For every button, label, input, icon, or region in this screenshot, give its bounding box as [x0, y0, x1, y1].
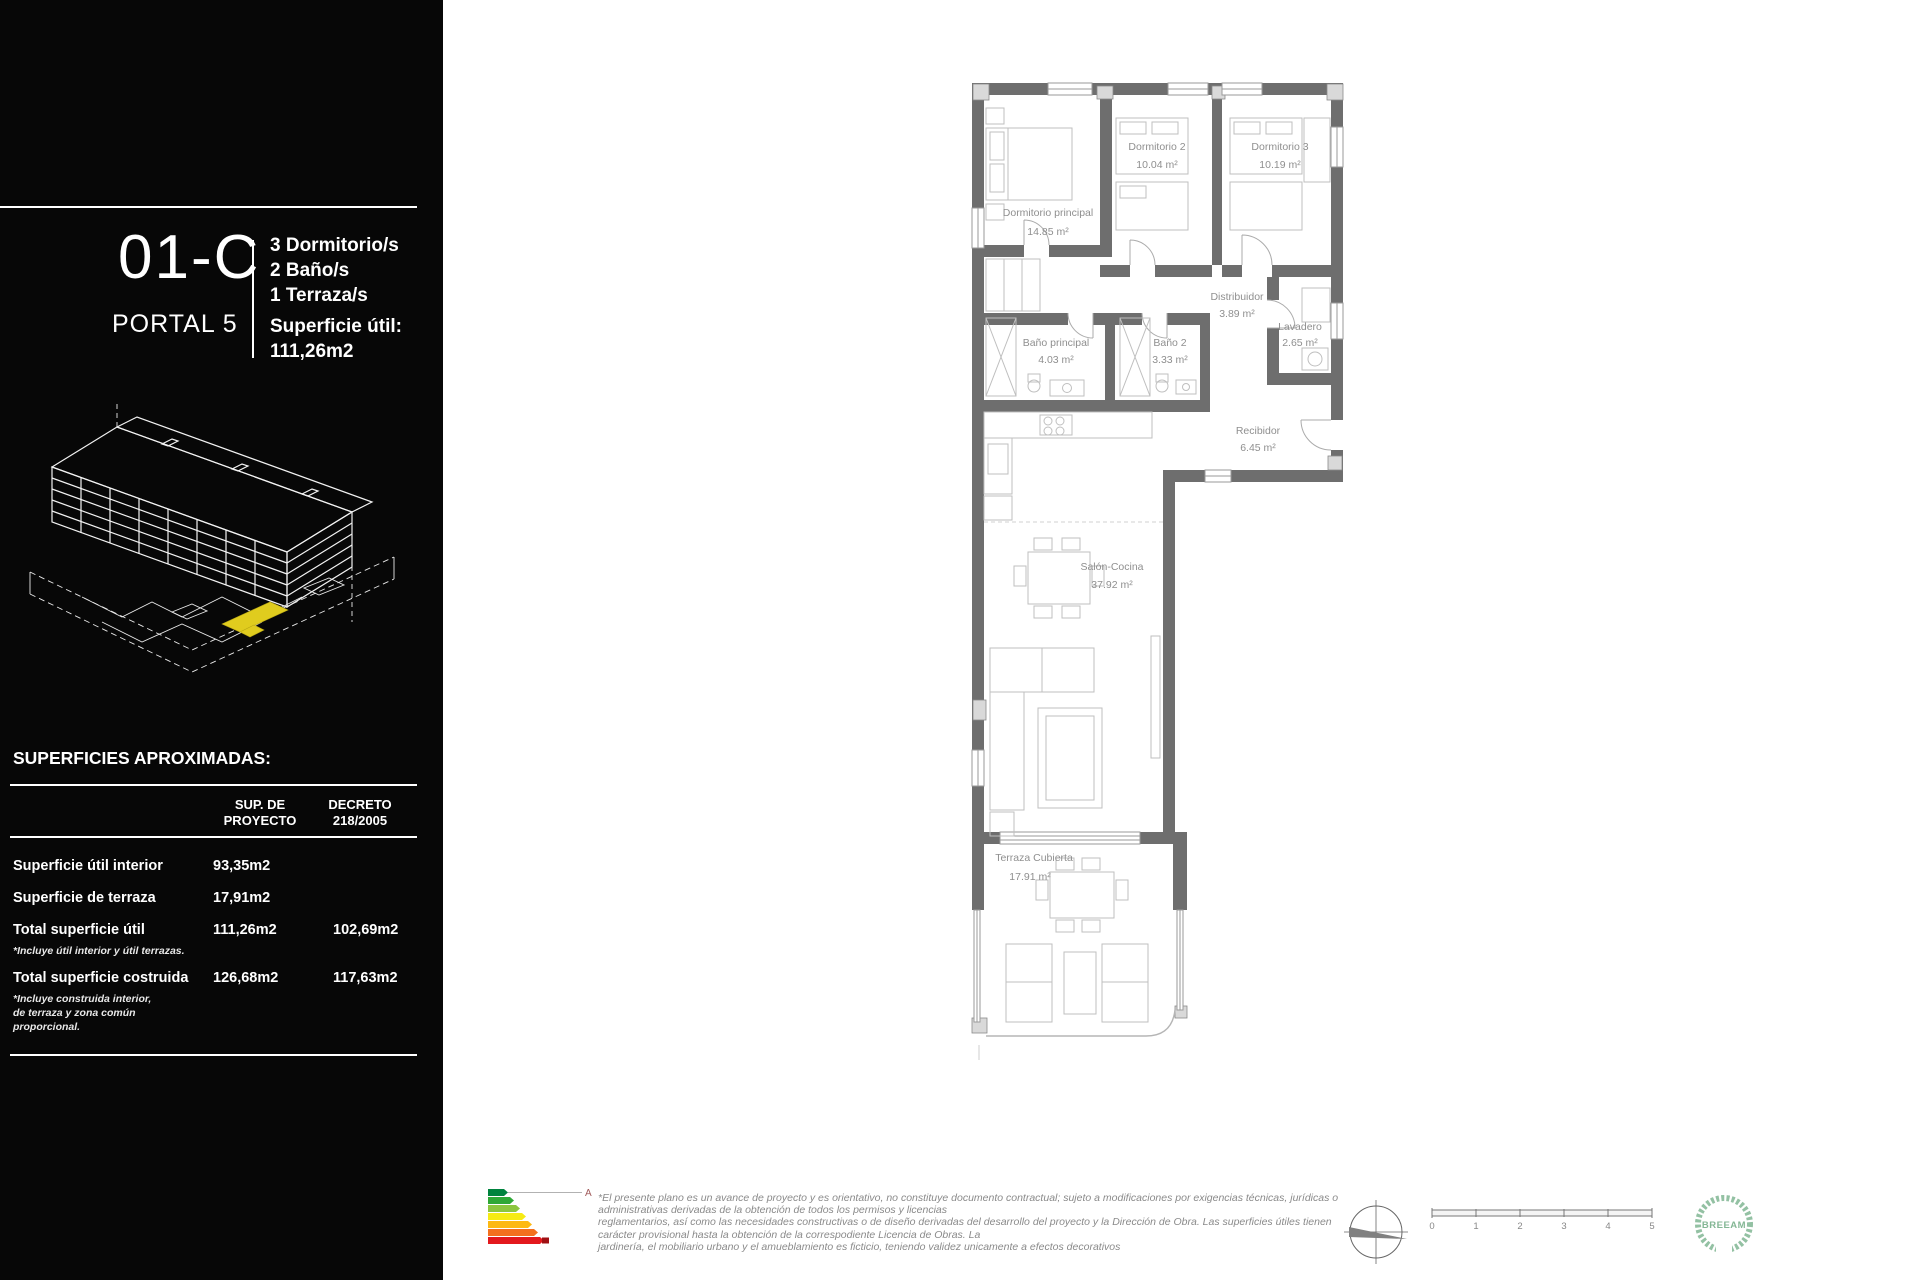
svg-text:5: 5: [1649, 1221, 1654, 1232]
table-row-value: 102,69m2: [333, 922, 398, 938]
table-row-label: Superficie útil interior: [13, 858, 163, 874]
table-row-label: Total superficie costruida: [13, 970, 188, 986]
table-row-value: 93,35m2: [213, 858, 270, 874]
terrace-edge: [979, 1010, 1175, 1060]
plan-sheet: 01-C 3 Dormitorio/s 2 Baño/s 1 Terraza/s…: [0, 0, 1920, 1280]
svg-text:2.65 m²: 2.65 m²: [1282, 337, 1318, 349]
feature-bedrooms: 3 Dormitorio/s: [270, 233, 399, 258]
breeam-label: BREEAM: [1702, 1220, 1746, 1231]
svg-text:37.92 m²: 37.92 m²: [1091, 579, 1133, 591]
feature-terraces: 1 Terraza/s: [270, 283, 399, 308]
disclaimer-text: *El presente plano es un avance de proye…: [598, 1192, 1368, 1253]
svg-text:6.45 m²: 6.45 m²: [1240, 442, 1276, 454]
room-label-dormitorio-3: Dormitorio 3: [1251, 141, 1308, 153]
unit-features: 3 Dormitorio/s 2 Baño/s 1 Terraza/s: [270, 233, 399, 308]
table-row-label: Total superficie útil: [13, 922, 145, 938]
table-row-label: Superficie de terraza: [13, 890, 156, 906]
svg-text:2: 2: [1517, 1221, 1522, 1232]
table-row-value: 17,91m2: [213, 890, 270, 906]
divider-vertical: [252, 240, 254, 358]
building-isometric-drawing: [22, 372, 412, 732]
building-wireframe: [52, 417, 372, 607]
room-label-dormitorio-principal: Dormitorio principal: [1003, 207, 1093, 219]
column-header-proyecto: SUP. DE PROYECTO: [205, 797, 315, 829]
svg-text:14.85 m²: 14.85 m²: [1027, 226, 1069, 238]
floor-plan: Dormitorio principal 14.85 m² Dormitorio…: [950, 60, 1370, 1060]
svg-text:1: 1: [1473, 1221, 1478, 1232]
table-row-note: *Incluye construida interior, de terraza…: [13, 992, 163, 1034]
energy-bars: [488, 1189, 549, 1244]
useful-surface-value: 111,26m2: [270, 339, 402, 364]
table-row-value: 117,63m2: [333, 970, 398, 986]
room-label-salon-cocina: Salón-Cocina: [1080, 561, 1143, 573]
svg-text:10.19 m²: 10.19 m²: [1259, 159, 1301, 171]
site-plan-outline: [30, 402, 394, 672]
scale-bar: 0 1 2 3 4 5: [1428, 1204, 1668, 1234]
room-label-bano-principal: Baño principal: [1023, 337, 1090, 349]
room-label-bano-2: Baño 2: [1153, 337, 1186, 349]
svg-text:4: 4: [1605, 1221, 1610, 1232]
plan-furniture: [984, 108, 1330, 1022]
room-label-distribuidor: Distribuidor: [1210, 291, 1264, 303]
sidebar: 01-C 3 Dormitorio/s 2 Baño/s 1 Terraza/s…: [0, 0, 443, 1280]
unit-code: 01-C: [118, 222, 260, 293]
table-row-value: 126,68m2: [213, 970, 278, 986]
feature-bathrooms: 2 Baño/s: [270, 258, 399, 283]
svg-text:10.04 m²: 10.04 m²: [1136, 159, 1178, 171]
svg-text:0: 0: [1429, 1221, 1434, 1232]
svg-text:3.89 m²: 3.89 m²: [1219, 308, 1255, 320]
table-row-note: *Incluye útil interior y útil terrazas.: [13, 944, 233, 958]
energy-rating-letter: A: [585, 1188, 592, 1199]
table-rule-1: [10, 784, 417, 786]
column-header-decreto: DECRETO 218/2005: [310, 797, 410, 829]
room-label-recibidor: Recibidor: [1236, 425, 1281, 437]
compass-icon: [1340, 1198, 1412, 1270]
room-labels: Dormitorio principal 14.85 m² Dormitorio…: [995, 141, 1322, 883]
svg-text:4.03 m²: 4.03 m²: [1038, 354, 1074, 366]
useful-surface: Superficie útil: 111,26m2: [270, 314, 402, 364]
table-row-value: 111,26m2: [213, 922, 277, 938]
portal-label: PORTAL 5: [112, 310, 238, 339]
surfaces-table-title: SUPERFICIES APROXIMADAS:: [13, 748, 271, 769]
room-label-terraza-cubierta: Terraza Cubierta: [995, 852, 1073, 864]
table-rule-3: [10, 1054, 417, 1056]
room-label-dormitorio-2: Dormitorio 2: [1128, 141, 1185, 153]
energy-rating-icon: A: [484, 1186, 604, 1252]
divider-top: [0, 206, 417, 208]
svg-text:3: 3: [1561, 1221, 1566, 1232]
svg-text:3.33 m²: 3.33 m²: [1152, 354, 1188, 366]
table-rule-2: [10, 836, 417, 838]
breeam-logo: BREEAM: [1688, 1190, 1760, 1262]
useful-surface-label: Superficie útil:: [270, 314, 402, 339]
svg-text:17.91 m²: 17.91 m²: [1009, 871, 1051, 883]
room-label-lavadero: Lavadero: [1278, 321, 1322, 333]
